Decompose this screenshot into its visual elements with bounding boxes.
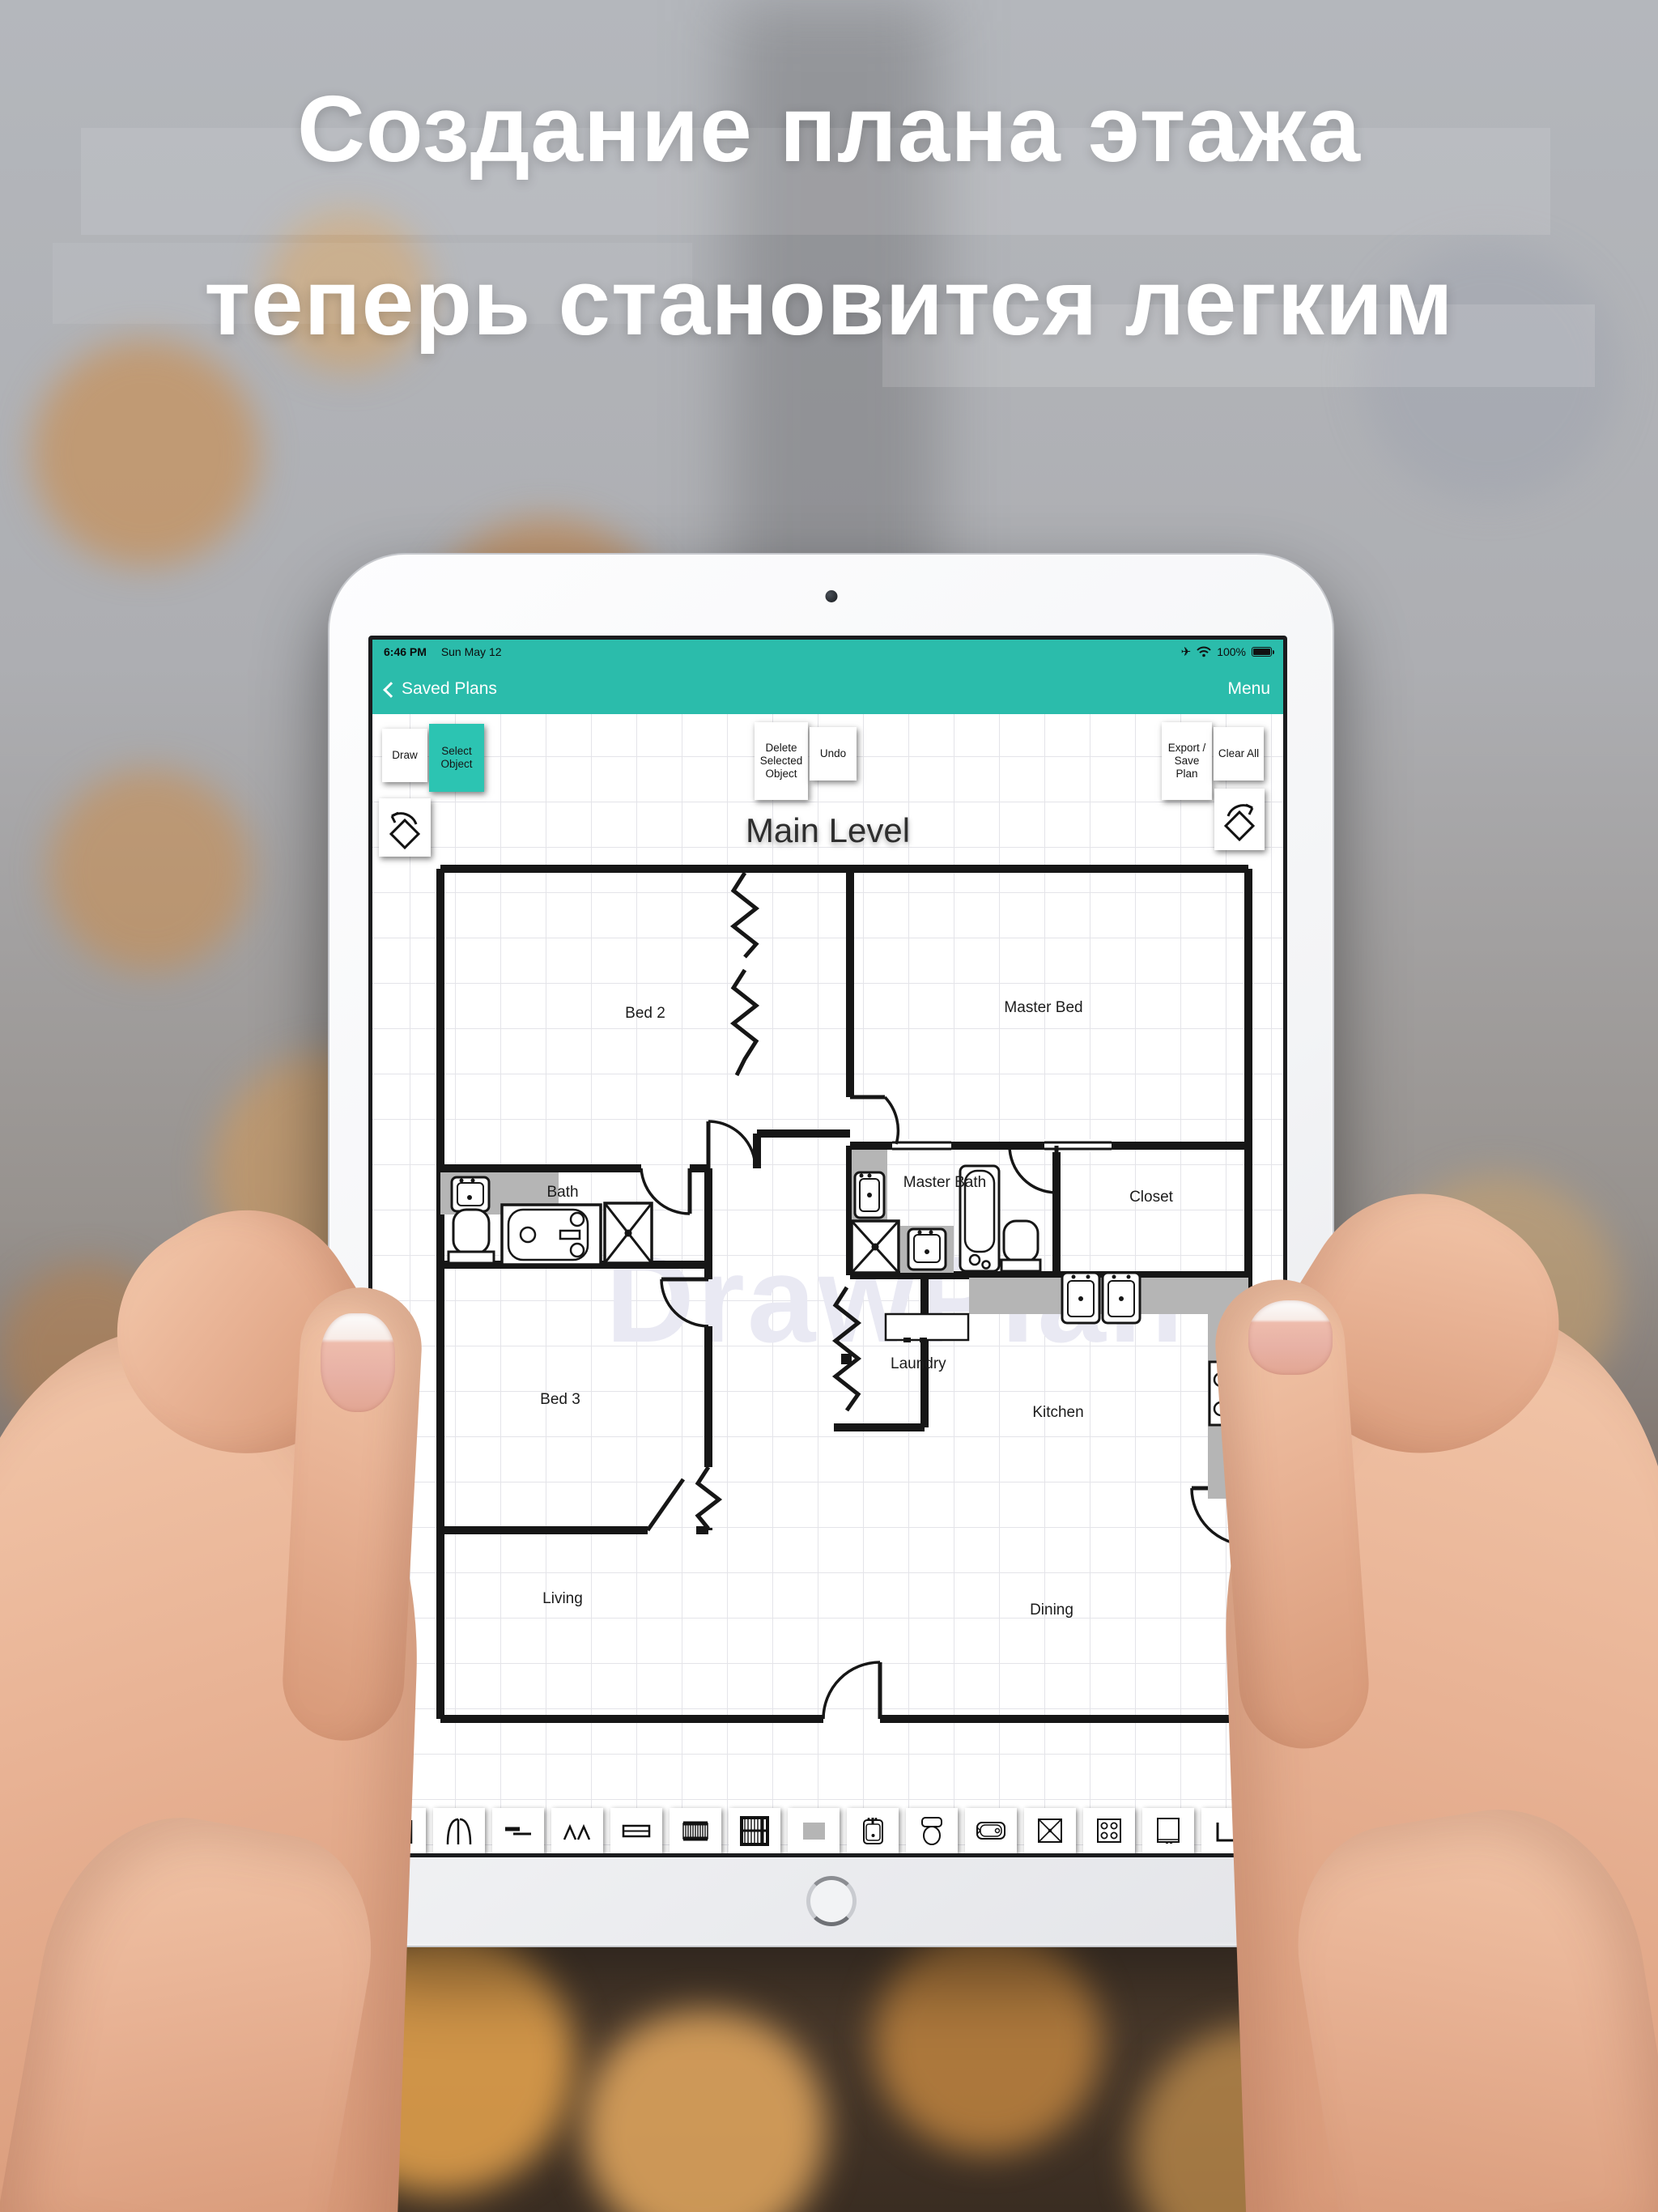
- app-screen: 6:46 PM Sun May 12 ✈ 100% Saved Plans Me…: [368, 636, 1287, 1857]
- palette-staircase[interactable]: [729, 1808, 780, 1853]
- palette-refrigerator[interactable]: [1142, 1808, 1194, 1853]
- airplane-mode-icon: ✈: [1181, 644, 1192, 659]
- window-icon: [620, 1814, 653, 1847]
- draw-button[interactable]: Draw: [382, 729, 427, 782]
- right-thumb-nail: [1248, 1300, 1333, 1375]
- palette-toilet[interactable]: [906, 1808, 958, 1853]
- bathtub-icon: [975, 1814, 1007, 1847]
- battery-icon: [1252, 647, 1272, 657]
- ipad-device: 6:46 PM Sun May 12 ✈ 100% Saved Plans Me…: [328, 553, 1334, 1947]
- pocket-door-icon: [502, 1814, 534, 1847]
- stove-icon: [1093, 1814, 1125, 1847]
- drawing-canvas[interactable]: DrawPlan: [372, 714, 1283, 1853]
- room-label: Dining: [1030, 1602, 1073, 1619]
- status-bar: 6:46 PM Sun May 12 ✈ 100%: [372, 640, 1283, 664]
- palette-sink[interactable]: [847, 1808, 899, 1853]
- symbol-palette: [372, 1808, 1283, 1853]
- rotate-right-icon: [1218, 795, 1261, 844]
- back-button[interactable]: Saved Plans: [385, 679, 497, 699]
- floor-plan-svg[interactable]: Bed 2 Master Bed Bath Master Bath Closet…: [372, 714, 1283, 1809]
- room-label: Living: [542, 1590, 583, 1607]
- bokeh-light: [583, 2008, 826, 2212]
- rotate-left-icon: [384, 803, 426, 852]
- select-object-button[interactable]: Select Object: [429, 724, 484, 792]
- palette-window[interactable]: [610, 1808, 662, 1853]
- home-button[interactable]: [806, 1876, 857, 1926]
- level-title: Main Level: [372, 811, 1283, 850]
- bokeh-light: [49, 769, 251, 972]
- rotate-left-button[interactable]: [379, 798, 431, 857]
- front-camera: [825, 590, 837, 602]
- shower-icon: [1034, 1814, 1066, 1847]
- chevron-left-icon: [383, 682, 399, 698]
- sink-icon: [857, 1814, 889, 1847]
- countertop-icon: [797, 1814, 830, 1847]
- rotate-right-button[interactable]: [1214, 789, 1265, 850]
- refrigerator-icon: [1152, 1814, 1184, 1847]
- laundry-marker: [841, 1354, 852, 1364]
- bay-window-icon: [561, 1814, 593, 1847]
- back-label: Saved Plans: [402, 679, 497, 699]
- nav-bar: Saved Plans Menu: [372, 664, 1283, 714]
- stairs-icon: [679, 1814, 712, 1847]
- status-date: Sun May 12: [441, 645, 502, 658]
- room-label: Master Bed: [1004, 999, 1082, 1016]
- room-label: Bath: [546, 1184, 578, 1201]
- palette-stove[interactable]: [1083, 1808, 1135, 1853]
- promo-title-line2: теперь становится легким: [0, 248, 1658, 356]
- toilet-icon: [916, 1814, 948, 1847]
- export-save-button[interactable]: Export / Save Plan: [1162, 722, 1212, 800]
- room-label: Kitchen: [1032, 1404, 1083, 1421]
- room-label: Bed 2: [625, 1005, 665, 1022]
- undo-button[interactable]: Undo: [810, 727, 857, 781]
- room-label: Master Bath: [903, 1174, 986, 1191]
- palette-bay-window[interactable]: [551, 1808, 603, 1853]
- bokeh-light: [32, 340, 259, 567]
- wifi-icon: [1197, 646, 1211, 657]
- palette-stairs[interactable]: [670, 1808, 721, 1853]
- room-label: Bed 3: [540, 1391, 580, 1408]
- bokeh-light: [874, 1927, 1101, 2154]
- room-label: Closet: [1129, 1189, 1174, 1206]
- double-door-icon: [443, 1814, 475, 1847]
- palette-bathtub[interactable]: [965, 1808, 1017, 1853]
- battery-percent: 100%: [1217, 645, 1246, 658]
- room-label: Laundry: [891, 1355, 946, 1372]
- delete-selected-button[interactable]: Delete Selected Object: [755, 722, 808, 800]
- menu-button[interactable]: Menu: [1227, 679, 1270, 699]
- palette-double-door[interactable]: [433, 1808, 485, 1853]
- palette-pocket-door[interactable]: [492, 1808, 544, 1853]
- clear-all-button[interactable]: Clear All: [1214, 727, 1264, 781]
- promo-title-line1: Создание плана этажа: [0, 74, 1658, 183]
- staircase-icon: [738, 1814, 771, 1847]
- status-time: 6:46 PM: [384, 645, 427, 658]
- left-thumb-nail: [321, 1313, 395, 1412]
- palette-countertop[interactable]: [788, 1808, 840, 1853]
- palette-shower[interactable]: [1024, 1808, 1076, 1853]
